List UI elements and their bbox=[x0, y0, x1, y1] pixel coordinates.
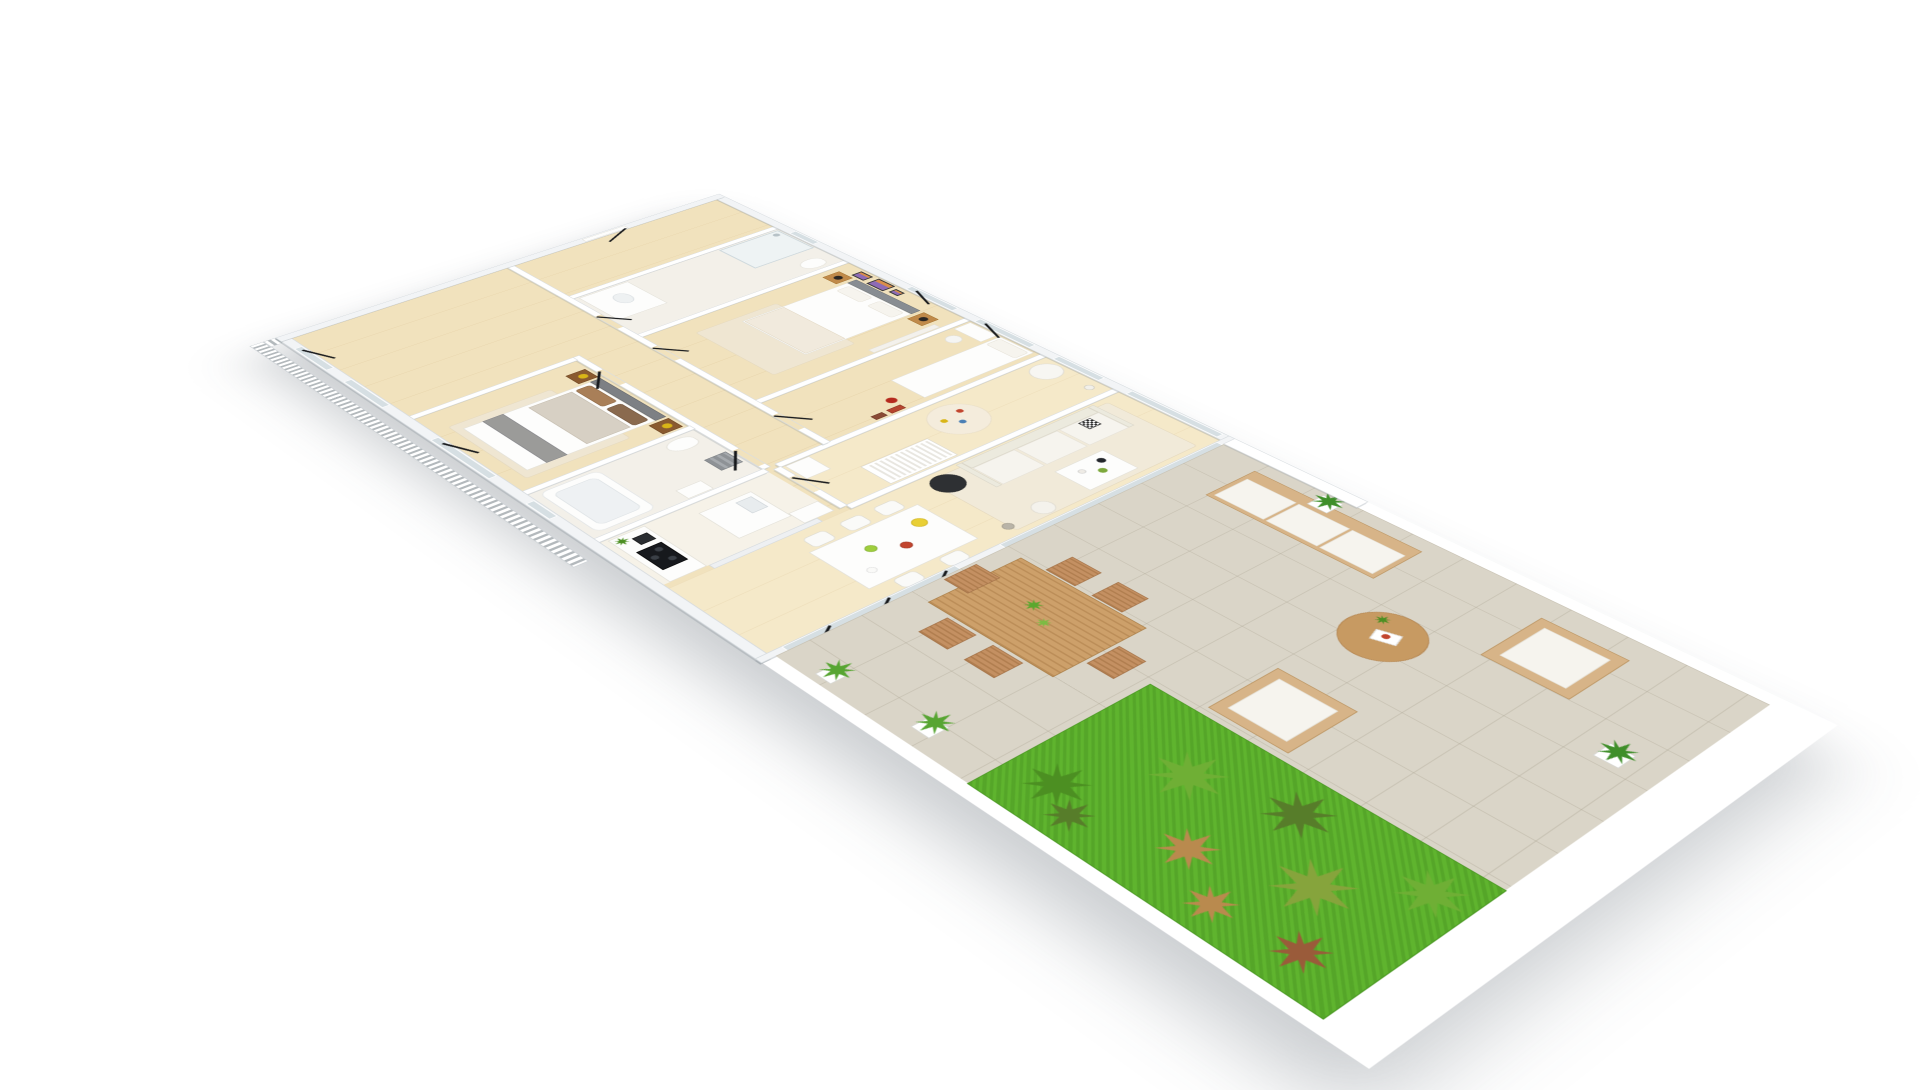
floor-plan-canvas bbox=[0, 0, 1920, 1080]
apartment-3d-floor-plan bbox=[276, 194, 1837, 1069]
door-stroke-bath2 bbox=[734, 451, 737, 471]
